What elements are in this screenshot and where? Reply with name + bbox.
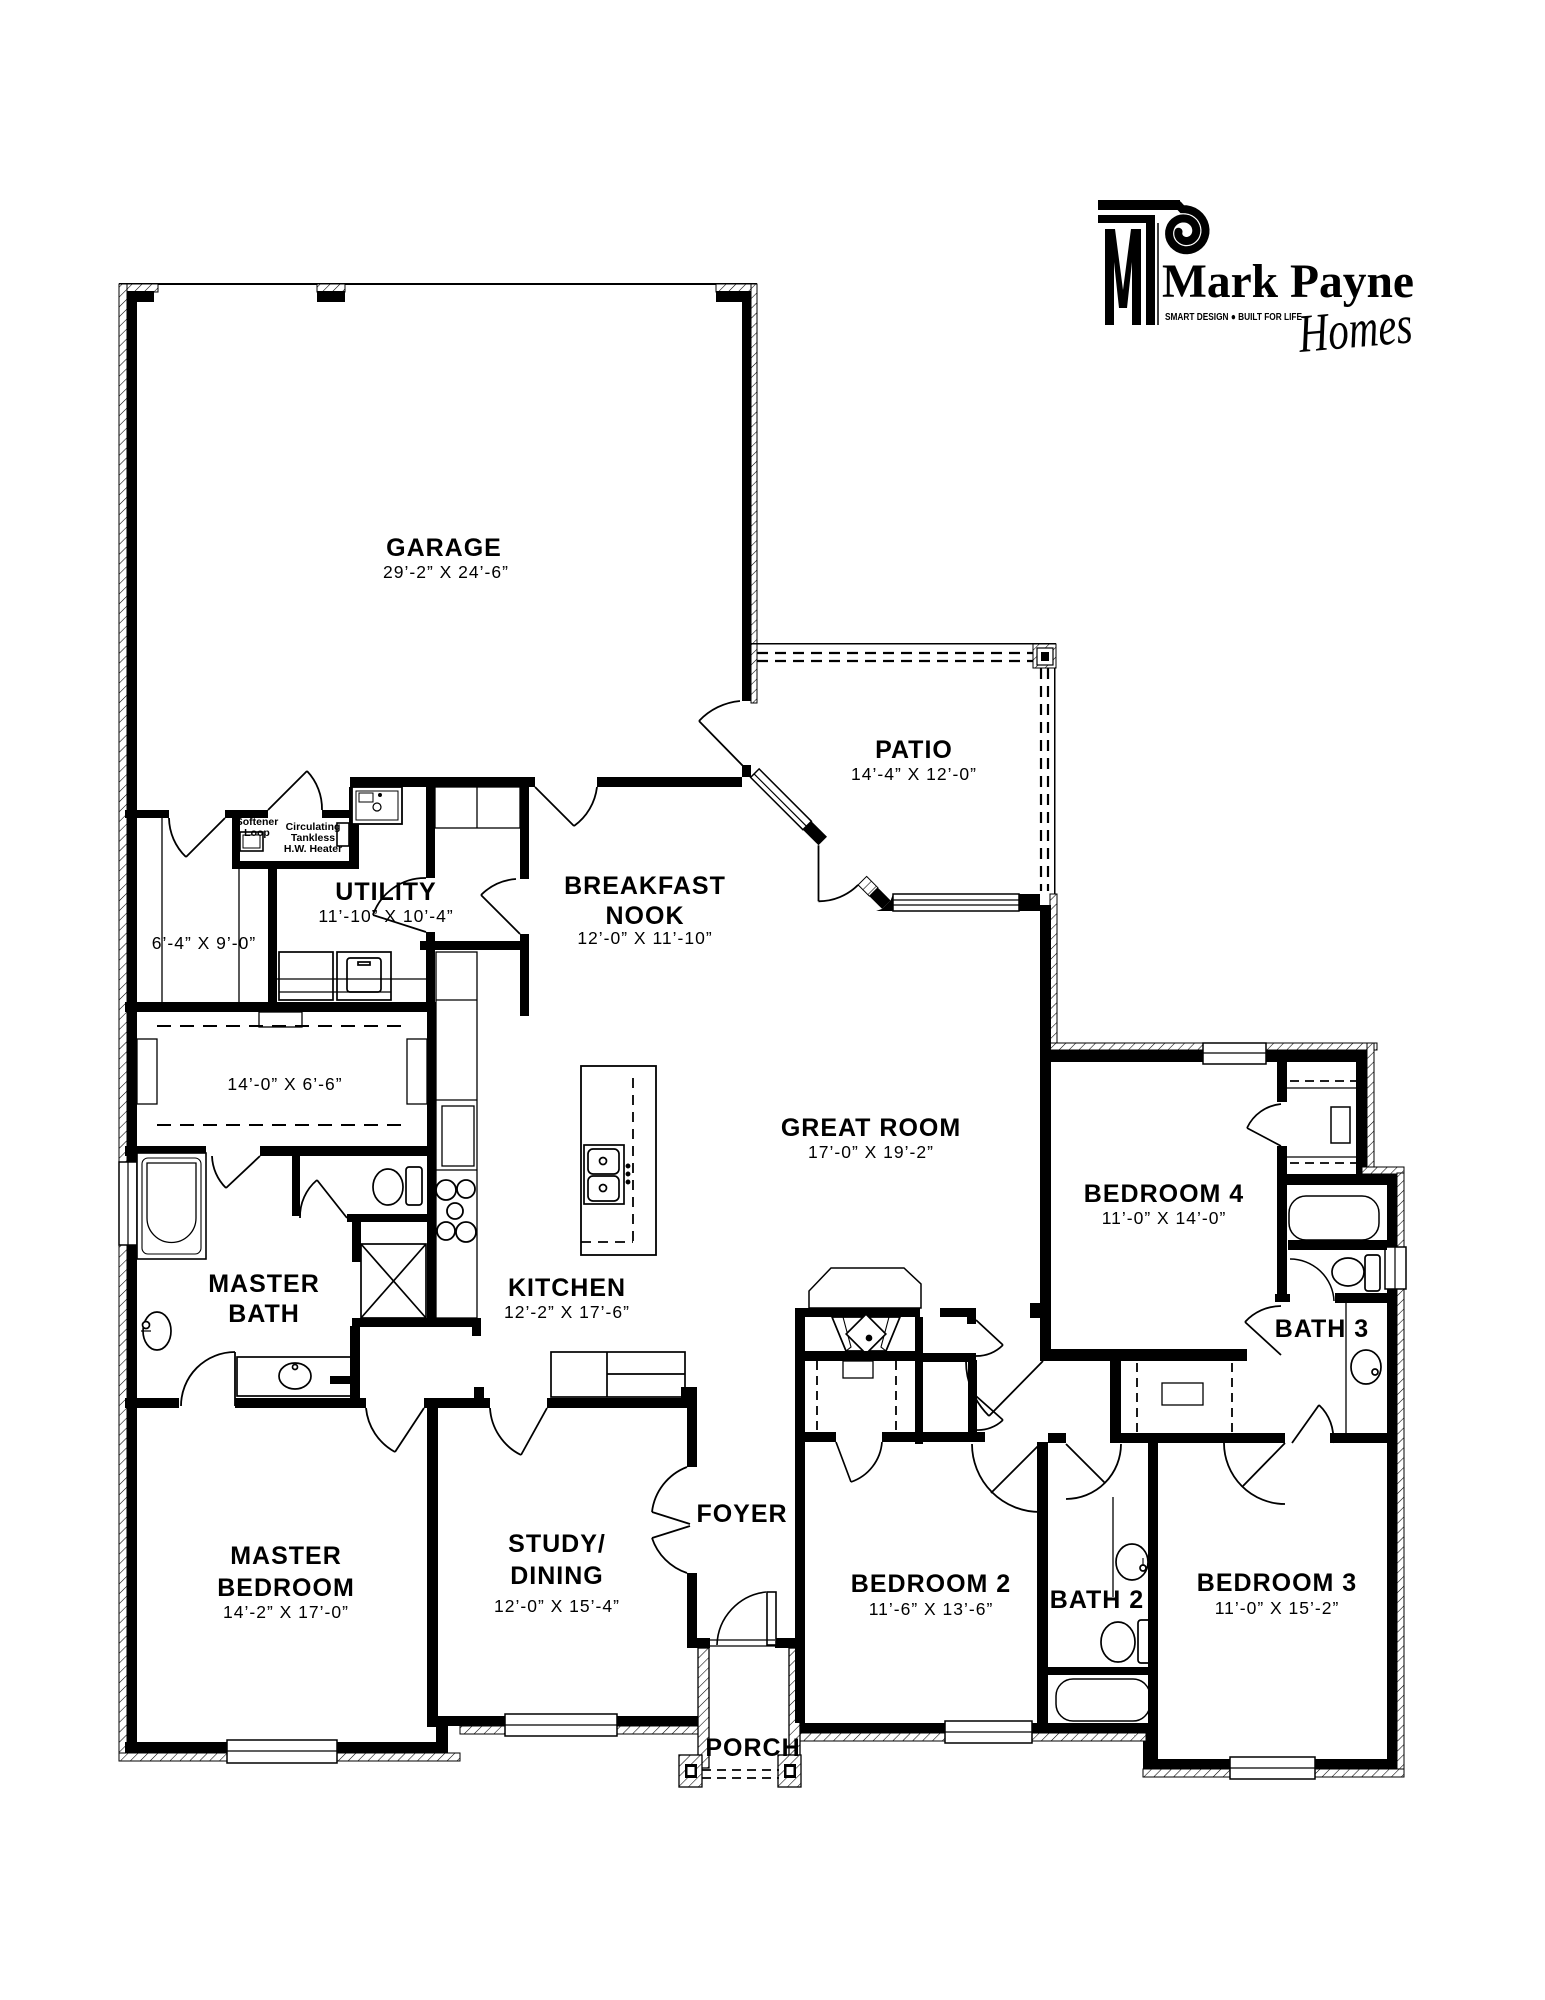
svg-text:STUDY/: STUDY/ <box>508 1530 606 1558</box>
svg-text:FOYER: FOYER <box>696 1500 787 1528</box>
svg-text:11’-0” X 15’-2”: 11’-0” X 15’-2” <box>1215 1598 1340 1618</box>
svg-text:SMART DESIGN ● BUILT FOR LIFE: SMART DESIGN ● BUILT FOR LIFE <box>1165 311 1302 323</box>
svg-text:17’-0” X 19’-2”: 17’-0” X 19’-2” <box>808 1142 934 1162</box>
svg-text:BATH 2: BATH 2 <box>1050 1586 1144 1614</box>
svg-text:Homes: Homes <box>1295 294 1415 364</box>
svg-text:BATH: BATH <box>228 1300 300 1328</box>
svg-text:BATH 3: BATH 3 <box>1275 1315 1369 1343</box>
svg-text:14’-0” X 6’-6”: 14’-0” X 6’-6” <box>227 1074 342 1094</box>
svg-text:29’-2” X 24’-6”: 29’-2” X 24’-6” <box>383 562 509 582</box>
svg-text:DINING: DINING <box>510 1562 604 1590</box>
svg-text:14’-4” X 12’-0”: 14’-4” X 12’-0” <box>851 764 977 784</box>
svg-text:NOOK: NOOK <box>606 902 685 930</box>
svg-text:6’-4” X 9’-0”: 6’-4” X 9’-0” <box>152 933 256 953</box>
svg-text:BEDROOM: BEDROOM <box>217 1574 355 1602</box>
svg-text:PORCH: PORCH <box>705 1734 800 1762</box>
svg-text:12’-0” X 11’-10”: 12’-0” X 11’-10” <box>577 928 712 948</box>
svg-text:UTILITY: UTILITY <box>335 878 436 906</box>
svg-text:H.W. Heater: H.W. Heater <box>284 843 342 855</box>
svg-text:GARAGE: GARAGE <box>386 534 502 562</box>
svg-text:14’-2” X 17’-0”: 14’-2” X 17’-0” <box>223 1602 349 1622</box>
svg-text:MASTER: MASTER <box>208 1270 320 1298</box>
svg-text:BEDROOM 4: BEDROOM 4 <box>1084 1180 1244 1208</box>
svg-text:KITCHEN: KITCHEN <box>508 1274 626 1302</box>
svg-text:12’-2” X 17’-6”: 12’-2” X 17’-6” <box>504 1302 630 1322</box>
svg-text:12’-0” X 15’-4”: 12’-0” X 15’-4” <box>494 1596 620 1616</box>
svg-text:BEDROOM 3: BEDROOM 3 <box>1197 1569 1357 1597</box>
svg-text:BREAKFAST: BREAKFAST <box>564 872 726 900</box>
svg-text:PATIO: PATIO <box>875 736 953 764</box>
svg-text:MASTER: MASTER <box>230 1542 342 1570</box>
svg-text:11’-6” X 13’-6”: 11’-6” X 13’-6” <box>869 1599 994 1619</box>
svg-text:11’-10” X 10’-4”: 11’-10” X 10’-4” <box>318 906 453 926</box>
svg-text:11’-0” X 14’-0”: 11’-0” X 14’-0” <box>1102 1208 1227 1228</box>
svg-text:BEDROOM 2: BEDROOM 2 <box>851 1570 1011 1598</box>
svg-text:Loop: Loop <box>244 827 270 839</box>
svg-text:GREAT ROOM: GREAT ROOM <box>781 1114 961 1142</box>
